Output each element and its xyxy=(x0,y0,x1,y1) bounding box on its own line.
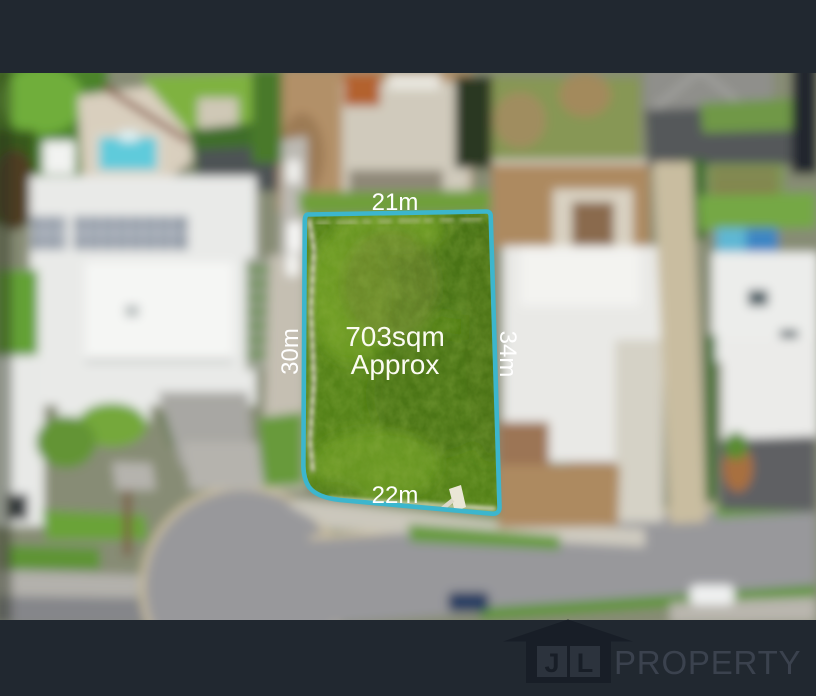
svg-text:34m: 34m xyxy=(494,331,521,378)
svg-text:L: L xyxy=(577,648,594,678)
svg-text:PROPERTY: PROPERTY xyxy=(614,644,801,681)
svg-text:30m: 30m xyxy=(277,328,304,375)
svg-text:J: J xyxy=(544,648,559,678)
svg-text:703sqm: 703sqm xyxy=(345,321,445,352)
svg-text:Approx: Approx xyxy=(351,349,440,380)
svg-text:21m: 21m xyxy=(372,189,419,216)
svg-text:22m: 22m xyxy=(372,482,419,509)
